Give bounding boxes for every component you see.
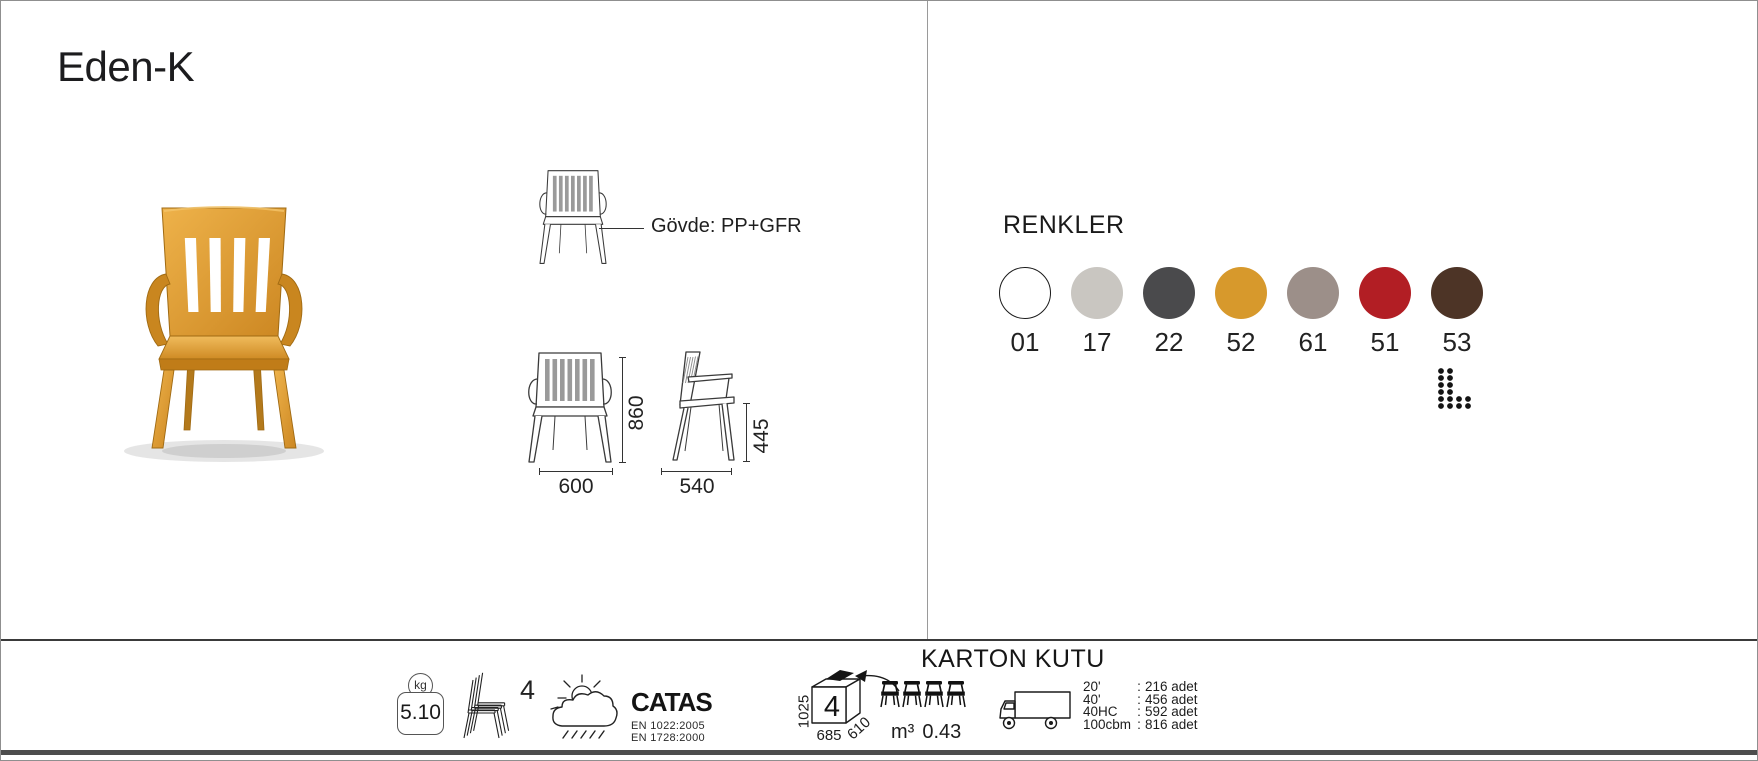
weight-value: 5.10	[397, 692, 444, 735]
swatch-label: 61	[1281, 327, 1345, 358]
catalog-page: Eden-K Gövde	[0, 0, 1758, 761]
chair-glyph-icon	[924, 681, 944, 708]
chair-glyph-icon	[946, 681, 966, 708]
chair-side-dimension-drawing	[654, 351, 742, 464]
height-dimension-line	[622, 357, 623, 463]
carton-volume: m³0.43	[891, 721, 961, 744]
truck-icon	[998, 691, 1074, 731]
colors-section-title: RENKLER	[1003, 211, 1125, 240]
color-swatch-53	[1431, 267, 1483, 319]
carton-section-title: KARTON KUTU	[921, 645, 1105, 674]
capacity-table: 20' : 216 adet 40' : 456 adet 40HC : 592…	[1083, 681, 1203, 731]
product-title: Eden-K	[57, 43, 194, 91]
swatch-label: 52	[1209, 327, 1273, 358]
cert-line-2: EN 1728:2000	[631, 732, 712, 744]
capacity-value: 816 adet	[1145, 719, 1203, 732]
bottom-border-bar	[1, 750, 1758, 755]
swatch-label: 51	[1353, 327, 1417, 358]
chair-glyph-icon	[880, 681, 900, 708]
stack-count: 4	[520, 675, 535, 706]
dotted-l-logo-icon	[1437, 367, 1471, 411]
height-dimension-label: 860	[625, 385, 649, 441]
material-label: Gövde: PP+GFR	[651, 215, 802, 238]
color-swatch-52	[1215, 267, 1267, 319]
volume-unit: m³	[891, 721, 914, 743]
carton-qty: 4	[820, 691, 844, 724]
color-swatch-61	[1287, 267, 1339, 319]
capacity-separator: :	[1133, 719, 1145, 732]
color-swatch-22	[1143, 267, 1195, 319]
vertical-divider	[927, 1, 928, 639]
capacity-row: 100cbm : 816 adet	[1083, 719, 1203, 732]
outdoor-weather-icon	[546, 674, 618, 740]
volume-value: 0.43	[922, 721, 961, 743]
width-dimension-label: 600	[548, 475, 604, 499]
swatch-label: 17	[1065, 327, 1129, 358]
seat-height-dimension-line	[746, 403, 747, 462]
horizontal-divider	[1, 639, 1758, 641]
catas-logo: CATAS EN 1022:2005 EN 1728:2000	[631, 687, 712, 744]
kg-weight-icon: kg 5.10	[397, 673, 445, 735]
capacity-label: 100cbm	[1083, 719, 1133, 732]
swatch-label: 01	[993, 327, 1057, 358]
chair-front-small-drawing	[536, 169, 610, 266]
color-swatch-51	[1359, 267, 1411, 319]
seat-height-dimension-label: 445	[750, 408, 774, 464]
stacked-chairs-icon	[459, 671, 519, 739]
depth-dimension-line	[661, 471, 732, 472]
product-photo	[104, 194, 344, 474]
depth-dimension-label: 540	[669, 475, 725, 499]
material-leader-line	[599, 228, 644, 229]
chair-glyph-icon	[902, 681, 922, 708]
swatch-label: 53	[1425, 327, 1489, 358]
chair-front-dimension-drawing	[524, 351, 616, 465]
cert-line-1: EN 1022:2005	[631, 720, 712, 732]
catas-brand-text: CATAS	[631, 687, 712, 718]
color-swatch-17	[1071, 267, 1123, 319]
carton-height-label: 1025	[796, 689, 813, 735]
color-swatch-01	[999, 267, 1051, 319]
width-dimension-line	[539, 471, 613, 472]
swatch-label: 22	[1137, 327, 1201, 358]
